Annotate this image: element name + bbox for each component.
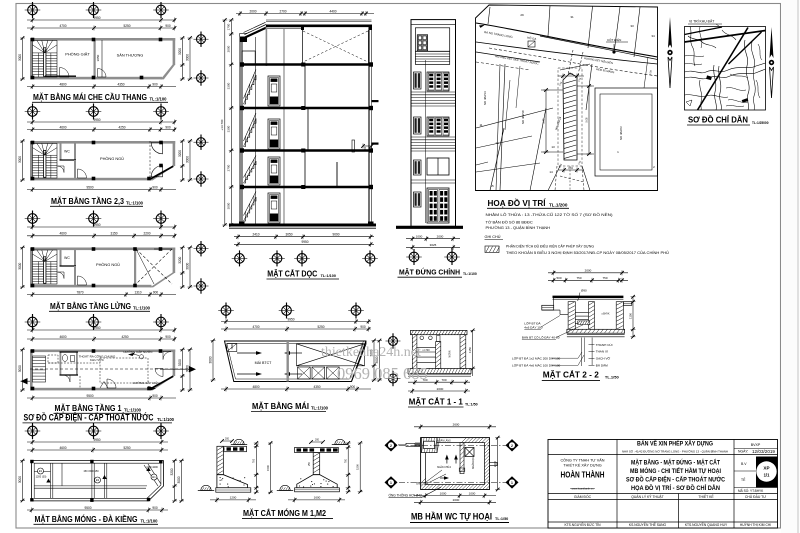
svg-text:9500: 9500 xyxy=(86,185,93,189)
svg-text:TL:1/100: TL:1/100 xyxy=(141,518,159,523)
svg-text:CỘT ĐIỆN: CỘT ĐIỆN xyxy=(607,37,621,42)
svg-text:x.1700: x.1700 xyxy=(422,349,430,352)
svg-text:1500: 1500 xyxy=(356,464,360,470)
svg-text:1/1: 1/1 xyxy=(764,473,770,478)
svg-text:9090: 9090 xyxy=(332,233,339,237)
svg-text:9500: 9500 xyxy=(84,506,91,510)
svg-text:700: 700 xyxy=(253,458,256,463)
svg-text:THANH CỦI: THANH CỦI xyxy=(596,342,613,347)
svg-text:WC: WC xyxy=(64,256,70,260)
svg-text:WC: WC xyxy=(64,150,70,154)
svg-text:900: 900 xyxy=(360,325,366,329)
svg-text:9950: 9950 xyxy=(93,438,100,442)
svg-text:HỌA ĐỒ VỊ TRÍ - SƠ ĐỒ CHỈ DẪN: HỌA ĐỒ VỊ TRÍ - SƠ ĐỒ CHỈ DẪN xyxy=(631,484,720,492)
svg-text:2000: 2000 xyxy=(249,9,256,13)
svg-text:4350: 4350 xyxy=(117,82,124,86)
svg-text:NO 482/23: NO 482/23 xyxy=(619,126,623,140)
svg-text:Ø90: Ø90 xyxy=(581,289,587,293)
svg-text:1000: 1000 xyxy=(416,235,423,239)
svg-text:KTS.NGUYỄN ĐỨC TÍN: KTS.NGUYỄN ĐỨC TÍN xyxy=(564,522,601,527)
svg-text:9950: 9950 xyxy=(93,16,100,20)
svg-text:2700: 2700 xyxy=(279,9,286,13)
svg-text:9500: 9500 xyxy=(86,394,93,398)
svg-text:TL:1/100: TL:1/100 xyxy=(126,201,144,206)
svg-text:THAN XỈ: THAN XỈ xyxy=(596,349,608,354)
svg-text:SƠ ĐỒ CẤP ĐIỆN - CẤP THOÁT NƯỚ: SƠ ĐỒ CẤP ĐIỆN - CẤP THOÁT NƯỚC xyxy=(626,476,725,484)
svg-text:MẶT ĐỨNG CHÍNH: MẶT ĐỨNG CHÍNH xyxy=(399,268,460,277)
svg-text:5250: 5250 xyxy=(123,446,130,450)
svg-text:GẠCH VỠ: GẠCH VỠ xyxy=(596,356,611,361)
svg-text:4800: 4800 xyxy=(59,82,66,86)
svg-text:3025: 3025 xyxy=(430,243,437,247)
svg-text:2000: 2000 xyxy=(437,387,444,391)
svg-text:33: 33 xyxy=(630,24,634,28)
svg-text:900: 900 xyxy=(165,335,171,339)
svg-text:MẶT CẮT DỌC: MẶT CẮT DỌC xyxy=(267,269,317,278)
svg-text:TL:1/100: TL:1/100 xyxy=(311,406,329,411)
svg-text:9950: 9950 xyxy=(287,317,294,321)
svg-text:900: 900 xyxy=(165,125,171,129)
svg-text:4800: 4800 xyxy=(252,385,259,389)
svg-text:2000: 2000 xyxy=(437,235,444,239)
svg-text:1310: 1310 xyxy=(134,290,141,294)
svg-text:750: 750 xyxy=(576,276,581,280)
svg-text:1150: 1150 xyxy=(468,347,472,353)
svg-text:3000: 3000 xyxy=(208,356,212,363)
svg-text:LỚP BT ĐÁ 1x2 MÁC 200 DÀY100: LỚP BT ĐÁ 1x2 MÁC 200 DÀY100 xyxy=(512,355,561,360)
svg-text:5.92: 5.92 xyxy=(542,118,545,123)
svg-text:KHU VỰC: KHU VỰC xyxy=(90,358,105,362)
svg-text:3050: 3050 xyxy=(96,54,100,61)
svg-text:TL:1/50: TL:1/50 xyxy=(495,517,508,521)
svg-text:200: 200 xyxy=(315,439,320,442)
svg-text:4600: 4600 xyxy=(59,232,66,236)
svg-text:ĐÁ DĂM: ĐÁ DĂM xyxy=(596,363,608,367)
svg-text:29: 29 xyxy=(520,13,524,17)
svg-text:PHÒNG NGỦ: PHÒNG NGỦ xyxy=(96,262,120,267)
svg-text:13: 13 xyxy=(551,145,555,149)
svg-text:2000: 2000 xyxy=(453,498,460,502)
svg-text:NGĂN LẮNG: NGĂN LẮNG xyxy=(437,440,451,443)
svg-text:3000: 3000 xyxy=(177,476,181,483)
svg-text:TL:1/100: TL:1/100 xyxy=(321,274,336,278)
svg-text:3300: 3300 xyxy=(227,82,231,89)
svg-text:TL:1/100: TL:1/100 xyxy=(463,272,477,276)
svg-text:ỐNG: ỐNG xyxy=(416,481,422,486)
svg-text:700: 700 xyxy=(441,378,446,382)
svg-text:3200: 3200 xyxy=(178,48,182,55)
svg-text:MẶT BẰNG MÁI CHE CẦU THANG: MẶT BẰNG MÁI CHE CẦU THANG xyxy=(33,92,147,102)
svg-text:2200: 2200 xyxy=(143,232,150,236)
svg-text:5250: 5250 xyxy=(123,24,130,28)
svg-text:3000: 3000 xyxy=(18,262,22,269)
svg-text:700: 700 xyxy=(345,458,348,463)
svg-text:TL.1/50: TL.1/50 xyxy=(605,375,620,380)
svg-text:LỚP BT ĐÁ 4x6 MÁC 100 DÀY100: LỚP BT ĐÁ 4x6 MÁC 100 DÀY100 xyxy=(512,362,561,367)
svg-text:9950: 9950 xyxy=(301,240,308,244)
svg-text:2600: 2600 xyxy=(453,423,460,427)
svg-text:HUỲNH THỊ KIM CHI: HUỲNH THỊ KIM CHI xyxy=(740,523,771,527)
svg-text:3000: 3000 xyxy=(185,262,189,269)
svg-text:MÁI BTCT: MÁI BTCT xyxy=(255,361,273,365)
svg-text:4400: 4400 xyxy=(329,9,336,13)
svg-text:14: 14 xyxy=(549,170,553,174)
svg-text:3200: 3200 xyxy=(178,359,182,366)
svg-text:1200: 1200 xyxy=(230,496,237,500)
svg-text:NHÀ SỐ : 41/42 ĐƯỜNG NỞ TRANG: NHÀ SỐ : 41/42 ĐƯỜNG NỞ TRANG LONG - PHƯ… xyxy=(622,448,728,453)
svg-text:2700: 2700 xyxy=(227,164,231,171)
svg-text:KTS.NGUYỄN QUANG HUY: KTS.NGUYỄN QUANG HUY xyxy=(685,522,728,527)
svg-text:QUẢN LÝ KỸ THUẬT: QUẢN LÝ KỸ THUẬT xyxy=(631,494,664,499)
svg-text:MÃ SỐ: YT.BHYK: MÃ SỐ: YT.BHYK xyxy=(738,488,764,493)
svg-text:THIẾT KẾ: THIẾT KẾ xyxy=(698,494,714,499)
svg-text:NHẰM LÔ THỬA : 13 -THỬA CŨ 1: NHẰM LÔ THỬA : 13 -THỬA CŨ 122 TỜ SỐ 7 (… xyxy=(486,212,614,217)
svg-text:MẶT BẰNG TẦNG 2,3: MẶT BẰNG TẦNG 2,3 xyxy=(51,196,124,206)
svg-text:3150: 3150 xyxy=(110,232,117,236)
svg-text:TL:1/100: TL:1/100 xyxy=(150,97,168,102)
svg-text:15: 15 xyxy=(490,184,494,188)
svg-text:THEO KHOẢN 5 ĐIỀU 3 NGHỊ ĐỊNH: THEO KHOẢN 5 ĐIỀU 3 NGHỊ ĐỊNH 53/2017/NĐ… xyxy=(506,250,670,255)
svg-text:GHI CHÚ: GHI CHÚ xyxy=(485,234,501,239)
svg-text:CHỦ ĐẦU TƯ: CHỦ ĐẦU TƯ xyxy=(745,494,766,499)
svg-text:NO 482/14: NO 482/14 xyxy=(483,91,487,105)
svg-text:HƯỚNG CẤP NƯỚC: HƯỚNG CẤP NƯỚC xyxy=(123,349,153,354)
svg-text:TẾ: TẾ xyxy=(741,477,746,482)
svg-text:1: 1 xyxy=(390,481,392,485)
svg-text:900: 900 xyxy=(363,146,367,151)
svg-text:1600: 1600 xyxy=(314,496,321,500)
svg-text:3200: 3200 xyxy=(178,256,182,263)
svg-text:CÔNG TY TNHH TƯ VẤN: CÔNG TY TNHH TƯ VẤN xyxy=(560,458,604,463)
svg-text:4.04: 4.04 xyxy=(568,73,573,76)
svg-text:PHƯỜNG 13 - QUẬN BÌNH THẠNH: PHƯỜNG 13 - QUẬN BÌNH THẠNH xyxy=(486,225,551,230)
svg-text:9950: 9950 xyxy=(93,118,100,122)
svg-text:MẶT BẰNG TẦNG LỬNG: MẶT BẰNG TẦNG LỬNG xyxy=(50,300,131,311)
svg-text:1000: 1000 xyxy=(469,491,476,495)
svg-text:3000: 3000 xyxy=(18,365,22,372)
svg-text:4600: 4600 xyxy=(59,335,66,339)
svg-text:4700: 4700 xyxy=(59,24,66,28)
svg-text:VỊ TRÍ KHU ĐẤT: VỊ TRÍ KHU ĐẤT xyxy=(689,20,714,24)
svg-text:B.V: B.V xyxy=(741,462,747,466)
svg-text:NGÀY:: NGÀY: xyxy=(738,450,748,454)
svg-text:3050: 3050 xyxy=(285,233,292,237)
svg-text:NGĂN LỌC: NGĂN LỌC xyxy=(472,457,475,469)
svg-text:LỚP BT ĐÁ: LỚP BT ĐÁ xyxy=(524,320,541,325)
svg-text:9950: 9950 xyxy=(93,223,100,227)
svg-text:PHÒNG GIẶT: PHÒNG GIẶT xyxy=(65,52,90,57)
svg-text:NO 482/18: NO 482/18 xyxy=(521,110,525,124)
svg-text:MẶT CẮT 2 - 2: MẶT CẮT 2 - 2 xyxy=(543,369,599,379)
svg-text:900: 900 xyxy=(350,385,356,389)
svg-text:34: 34 xyxy=(651,34,655,38)
svg-text:2410: 2410 xyxy=(252,233,259,237)
svg-text:4600: 4600 xyxy=(59,125,66,129)
svg-text:12: 12 xyxy=(495,141,499,145)
svg-text:12/03/2019: 12/03/2019 xyxy=(752,449,775,454)
svg-text:1500: 1500 xyxy=(266,465,270,471)
svg-text:3000: 3000 xyxy=(18,476,22,483)
svg-text:BVXP: BVXP xyxy=(751,443,761,447)
svg-text:MẶT CẮT MÓNG M 1,M2: MẶT CẮT MÓNG M 1,M2 xyxy=(243,507,326,518)
svg-text:3300: 3300 xyxy=(227,125,231,132)
svg-text:2: 2 xyxy=(511,444,513,448)
svg-text:PHÒNG NGỦ: PHÒNG NGỦ xyxy=(100,156,124,161)
svg-text:PHẦN DIỆN TÍCH ĐỦ ĐIỀU KIỆN CẤ: PHẦN DIỆN TÍCH ĐỦ ĐIỀU KIỆN CẤP PHÉP XÂY… xyxy=(506,243,594,248)
svg-text:SƠ ĐỒ CHỈ DẪN: SƠ ĐỒ CHỈ DẪN xyxy=(688,114,748,125)
svg-text:TL:1/100: TL:1/100 xyxy=(133,306,151,311)
svg-text:9950: 9950 xyxy=(93,326,100,330)
svg-text:900: 900 xyxy=(152,506,158,510)
svg-text:4.5Đ 4200: 4.5Đ 4200 xyxy=(146,466,158,469)
svg-text:3200: 3200 xyxy=(178,150,182,157)
svg-text:MẶT CẮT 1 - 1: MẶT CẮT 1 - 1 xyxy=(409,397,463,407)
svg-text:HƯỚNG CẤP ĐIỆN: HƯỚNG CẤP ĐIỆN xyxy=(133,380,160,385)
svg-text:TL:1/50: TL:1/50 xyxy=(465,403,478,407)
svg-text:7870: 7870 xyxy=(76,290,83,294)
svg-text:MB HẦM WC TỰ HOẠI: MB HẦM WC TỰ HOẠI xyxy=(411,512,492,522)
svg-text:1100: 1100 xyxy=(628,313,632,319)
svg-text:BẢN VẼ XIN PHÉP XÂY DỰNG: BẢN VẼ XIN PHÉP XÂY DỰNG xyxy=(637,439,713,448)
svg-text:HOÀN THÀNH: HOÀN THÀNH xyxy=(561,471,605,480)
svg-text:7000: 7000 xyxy=(231,344,234,350)
svg-text:1000: 1000 xyxy=(440,491,447,495)
svg-text:TL:1/25000: TL:1/25000 xyxy=(752,121,769,125)
svg-text:MẶT BẰNG - MẶT ĐỨNG - MẶT CẮT: MẶT BẰNG - MẶT ĐỨNG - MẶT CẮT xyxy=(631,459,720,467)
svg-text:x.BHYK: x.BHYK xyxy=(601,314,610,316)
svg-text:900: 900 xyxy=(153,290,159,294)
svg-text:4700: 4700 xyxy=(252,325,259,329)
svg-text:900: 900 xyxy=(152,185,158,189)
svg-text:NGĂN: NGĂN xyxy=(449,350,452,357)
svg-text:THIẾT KẾ XÂY DỰNG: THIẾT KẾ XÂY DỰNG xyxy=(563,463,601,468)
svg-text:0969 085 685: 0969 085 685 xyxy=(337,364,428,383)
svg-text:+13.700: +13.700 xyxy=(220,119,224,130)
svg-text:TL.1/200: TL.1/200 xyxy=(549,203,568,208)
svg-text:MẶT BẰNG MÁI: MẶT BẰNG MÁI xyxy=(252,401,309,411)
svg-text:3200: 3200 xyxy=(170,468,174,475)
svg-text:4.04: 4.04 xyxy=(568,167,573,170)
svg-text:1700: 1700 xyxy=(227,23,231,30)
svg-text:3000: 3000 xyxy=(185,156,189,163)
svg-text:5.06: 5.06 xyxy=(585,117,588,122)
svg-text:SƠ ĐỒ CẤP ĐIỆN - CẤP THOÁT NƯỚ: SƠ ĐỒ CẤP ĐIỆN - CẤP THOÁT NƯỚC xyxy=(24,411,154,422)
svg-text:ỐNG THÔNG HƠI Ø42: ỐNG THÔNG HƠI Ø42 xyxy=(389,493,423,498)
svg-text:2300: 2300 xyxy=(493,460,497,467)
svg-text:150 1500 150: 150 1500 150 xyxy=(83,470,99,473)
svg-text:TL:1/100: TL:1/100 xyxy=(157,417,175,422)
svg-text:TỜ BẢN ĐỒ SỐ 86 BĐĐC: TỜ BẢN ĐỒ SỐ 86 BĐĐC xyxy=(486,220,533,225)
svg-text:4x6 DÀY 100: 4x6 DÀY 100 xyxy=(524,326,542,330)
svg-text:4600: 4600 xyxy=(59,446,66,450)
svg-text:NGĂN CHỨA: NGĂN CHỨA xyxy=(437,466,452,469)
svg-text:900: 900 xyxy=(152,394,158,398)
svg-text:KS.NGUYỄN THẾ SANG: KS.NGUYỄN THẾ SANG xyxy=(629,522,667,527)
svg-text:HOẠ ĐỒ VỊ TRÍ: HOẠ ĐỒ VỊ TRÍ xyxy=(488,197,547,208)
svg-text:1200 (30): 1200 (30) xyxy=(36,476,47,479)
svg-text:4350: 4350 xyxy=(313,385,320,389)
svg-text:750: 750 xyxy=(602,276,607,280)
svg-text:5250: 5250 xyxy=(317,325,324,329)
svg-text:200: 200 xyxy=(225,438,230,441)
svg-text:thietkenha24h.net: thietkenha24h.net xyxy=(321,345,421,360)
svg-text:SÂN THƯỢNG: SÂN THƯỢNG xyxy=(117,53,144,58)
svg-text:2: 2 xyxy=(390,444,392,448)
svg-text:4250: 4250 xyxy=(121,335,128,339)
svg-text:31: 31 xyxy=(570,15,574,19)
svg-text:3000: 3000 xyxy=(18,156,22,163)
svg-text:900: 900 xyxy=(165,24,171,28)
svg-text:MB MÓNG - CHI TIẾT HẦM TỰ HOẠI: MB MÓNG - CHI TIẾT HẦM TỰ HOẠI xyxy=(630,467,721,475)
svg-text:3000: 3000 xyxy=(185,365,189,372)
svg-text:1: 1 xyxy=(511,481,513,485)
svg-text:BẢN BT CÓ LỖ ĐÁY 40-50: BẢN BT CÓ LỖ ĐÁY 40-50 xyxy=(522,334,560,339)
svg-text:4250: 4250 xyxy=(118,125,125,129)
svg-text:3000: 3000 xyxy=(18,54,22,61)
svg-text:500: 500 xyxy=(556,276,561,280)
svg-text:2000: 2000 xyxy=(585,269,592,273)
svg-text:3000: 3000 xyxy=(185,54,189,61)
svg-text:XP: XP xyxy=(763,466,769,471)
svg-text:GIÁM ĐỐC: GIÁM ĐỐC xyxy=(574,494,592,499)
svg-text:3000: 3000 xyxy=(227,202,231,209)
svg-text:MẶT BẰNG MÓNG - ĐÀ KIỀNG: MẶT BẰNG MÓNG - ĐÀ KIỀNG xyxy=(35,513,138,524)
svg-text:11: 11 xyxy=(479,123,482,127)
svg-text:2000: 2000 xyxy=(227,45,231,52)
svg-text:900: 900 xyxy=(152,82,158,86)
